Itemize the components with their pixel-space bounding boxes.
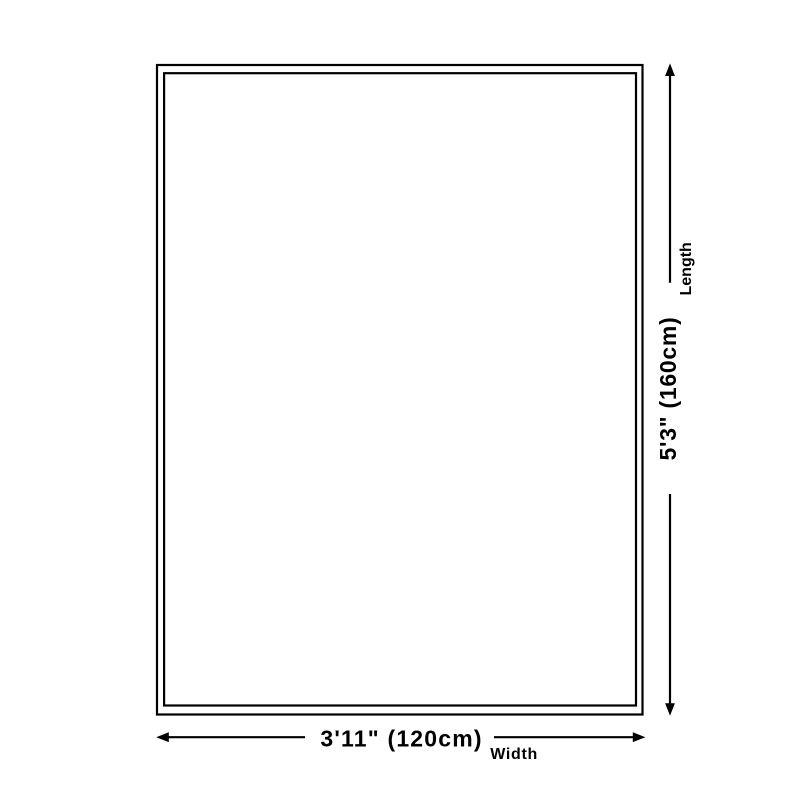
svg-text:3'11" (120cm): 3'11" (120cm) bbox=[320, 726, 482, 752]
svg-text:5'3" (160cm): 5'3" (160cm) bbox=[655, 317, 681, 461]
svg-text:Width: Width bbox=[490, 746, 538, 763]
svg-text:Length: Length bbox=[678, 242, 695, 295]
